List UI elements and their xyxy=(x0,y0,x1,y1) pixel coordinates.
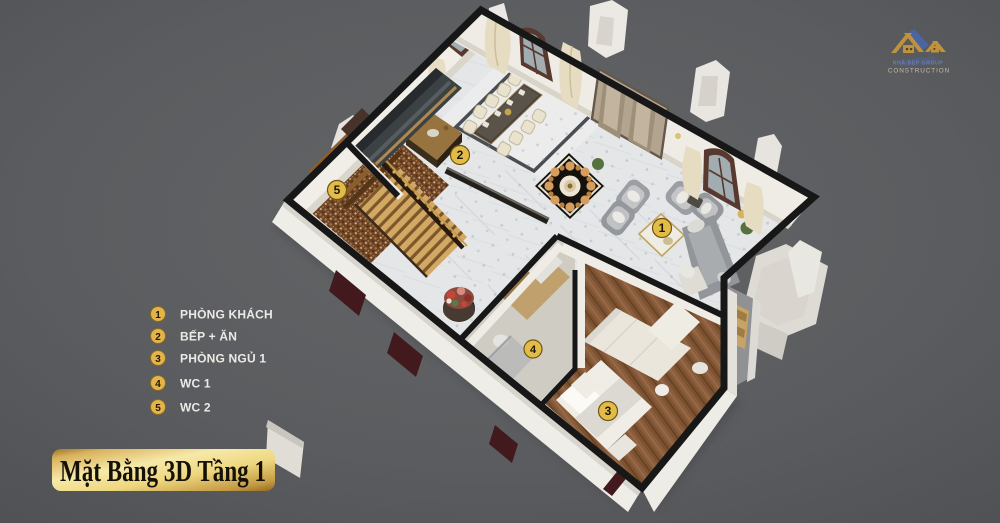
svg-text:WC 2: WC 2 xyxy=(180,401,211,415)
svg-text:4: 4 xyxy=(155,379,161,390)
svg-text:2: 2 xyxy=(155,332,161,343)
svg-text:PHÒNG KHÁCH: PHÒNG KHÁCH xyxy=(180,307,273,322)
svg-text:1: 1 xyxy=(659,221,666,235)
svg-text:4: 4 xyxy=(530,344,537,356)
svg-text:5: 5 xyxy=(155,403,161,414)
svg-text:3: 3 xyxy=(605,404,612,418)
svg-text:3: 3 xyxy=(155,354,161,365)
svg-text:PHÒNG NGỦ 1: PHÒNG NGỦ 1 xyxy=(180,351,266,366)
svg-text:2: 2 xyxy=(457,148,464,162)
svg-text:NHÀ ĐẸP GROUP: NHÀ ĐẸP GROUP xyxy=(893,60,944,67)
svg-text:5: 5 xyxy=(334,183,341,197)
svg-text:Mặt Bằng 3D Tầng 1: Mặt Bằng 3D Tầng 1 xyxy=(60,453,266,488)
svg-text:1: 1 xyxy=(155,310,161,321)
svg-text:WC 1: WC 1 xyxy=(180,377,211,391)
svg-text:CONSTRUCTION: CONSTRUCTION xyxy=(888,68,950,75)
svg-text:BẾP + ĂN: BẾP + ĂN xyxy=(180,329,237,344)
